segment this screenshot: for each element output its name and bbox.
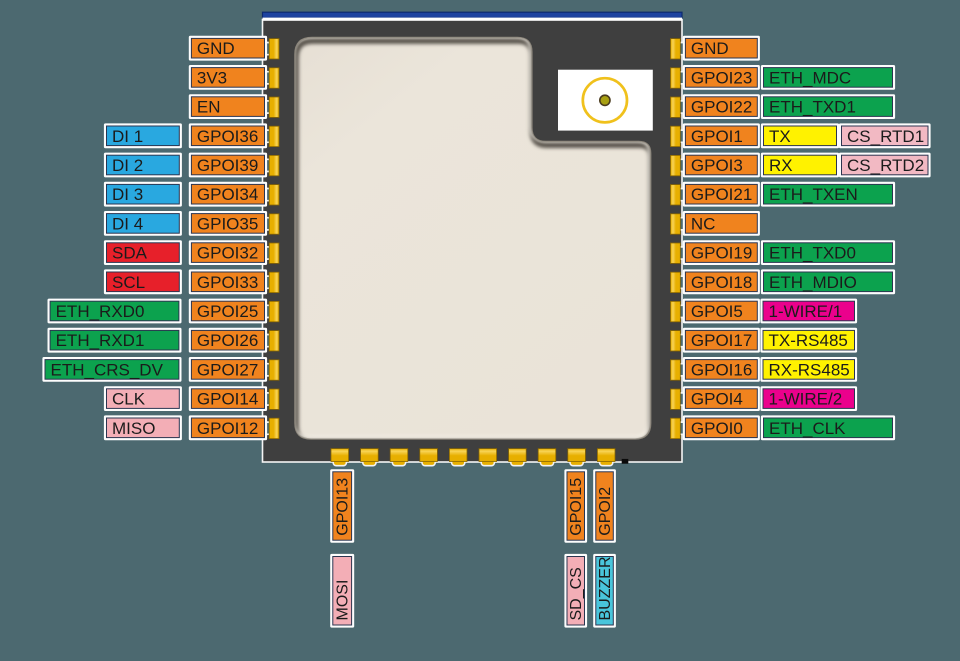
svg-text:GPOI0: GPOI0 bbox=[691, 419, 743, 438]
svg-text:SD_CS: SD_CS bbox=[568, 567, 585, 620]
svg-text:SDA: SDA bbox=[112, 244, 148, 263]
svg-text:ETH_TXD1: ETH_TXD1 bbox=[769, 98, 856, 117]
svg-text:CS_RTD2: CS_RTD2 bbox=[847, 156, 924, 175]
svg-text:GND: GND bbox=[197, 39, 235, 58]
svg-text:GPOI36: GPOI36 bbox=[197, 127, 258, 146]
svg-text:GPOI23: GPOI23 bbox=[691, 68, 752, 87]
svg-text:EN: EN bbox=[197, 98, 221, 117]
svg-text:GPOI34: GPOI34 bbox=[197, 185, 258, 204]
svg-text:GPOI1: GPOI1 bbox=[691, 127, 743, 146]
svg-text:DI 1: DI 1 bbox=[112, 127, 143, 146]
svg-text:GPOI15: GPOI15 bbox=[568, 478, 585, 536]
svg-text:MOSI: MOSI bbox=[334, 580, 351, 621]
svg-text:ETH_MDIO: ETH_MDIO bbox=[769, 273, 857, 292]
svg-text:GPOI33: GPOI33 bbox=[197, 273, 258, 292]
svg-text:GPOI17: GPOI17 bbox=[691, 331, 752, 350]
svg-text:DI 3: DI 3 bbox=[112, 185, 143, 204]
svg-text:GPOI32: GPOI32 bbox=[197, 244, 258, 263]
svg-text:DI 2: DI 2 bbox=[112, 156, 143, 175]
svg-text:ETH_TXEN: ETH_TXEN bbox=[769, 185, 858, 204]
svg-text:GPOI16: GPOI16 bbox=[691, 360, 752, 379]
svg-text:GPOI21: GPOI21 bbox=[691, 185, 752, 204]
svg-text:GPOI3: GPOI3 bbox=[691, 156, 743, 175]
svg-text:GPOI13: GPOI13 bbox=[334, 478, 351, 536]
svg-text:GPOI5: GPOI5 bbox=[691, 302, 743, 321]
svg-text:TX: TX bbox=[769, 127, 791, 146]
svg-text:GND: GND bbox=[691, 39, 729, 58]
svg-text:GPOI18: GPOI18 bbox=[691, 273, 752, 292]
svg-text:RX-RS485: RX-RS485 bbox=[769, 360, 850, 379]
svg-text:CS_RTD1: CS_RTD1 bbox=[847, 127, 924, 146]
svg-text:CLK: CLK bbox=[112, 390, 146, 409]
svg-text:3V3: 3V3 bbox=[197, 68, 227, 87]
svg-text:BUZZER: BUZZER bbox=[597, 557, 614, 621]
svg-text:GPOI39: GPOI39 bbox=[197, 156, 258, 175]
svg-text:1-WIRE/1: 1-WIRE/1 bbox=[769, 302, 843, 321]
svg-text:GPOI25: GPOI25 bbox=[197, 302, 258, 321]
svg-text:GPOI22: GPOI22 bbox=[691, 98, 752, 117]
svg-text:ETH_CRS_DV: ETH_CRS_DV bbox=[51, 360, 164, 379]
svg-text:GPOI12: GPOI12 bbox=[197, 419, 258, 438]
svg-text:GPOI14: GPOI14 bbox=[197, 390, 258, 409]
svg-text:RX: RX bbox=[769, 156, 793, 175]
svg-text:NC: NC bbox=[691, 214, 716, 233]
svg-text:GPOI26: GPOI26 bbox=[197, 331, 258, 350]
svg-text:GPOI4: GPOI4 bbox=[691, 390, 743, 409]
svg-text:GPOI2: GPOI2 bbox=[597, 487, 614, 536]
svg-text:GPOI27: GPOI27 bbox=[197, 360, 258, 379]
svg-text:GPIO35: GPIO35 bbox=[197, 214, 258, 233]
svg-text:DI 4: DI 4 bbox=[112, 214, 143, 233]
svg-text:MISO: MISO bbox=[112, 419, 155, 438]
svg-text:SCL: SCL bbox=[112, 273, 145, 292]
svg-text:ETH_CLK: ETH_CLK bbox=[769, 419, 846, 438]
svg-text:ETH_RXD0: ETH_RXD0 bbox=[56, 302, 145, 321]
svg-text:GPOI19: GPOI19 bbox=[691, 244, 752, 263]
svg-text:ETH_RXD1: ETH_RXD1 bbox=[56, 331, 145, 350]
svg-text:ETH_MDC: ETH_MDC bbox=[769, 68, 851, 87]
svg-text:1-WIRE/2: 1-WIRE/2 bbox=[769, 390, 843, 409]
svg-text:ETH_TXD0: ETH_TXD0 bbox=[769, 244, 856, 263]
svg-text:TX-RS485: TX-RS485 bbox=[769, 331, 848, 350]
